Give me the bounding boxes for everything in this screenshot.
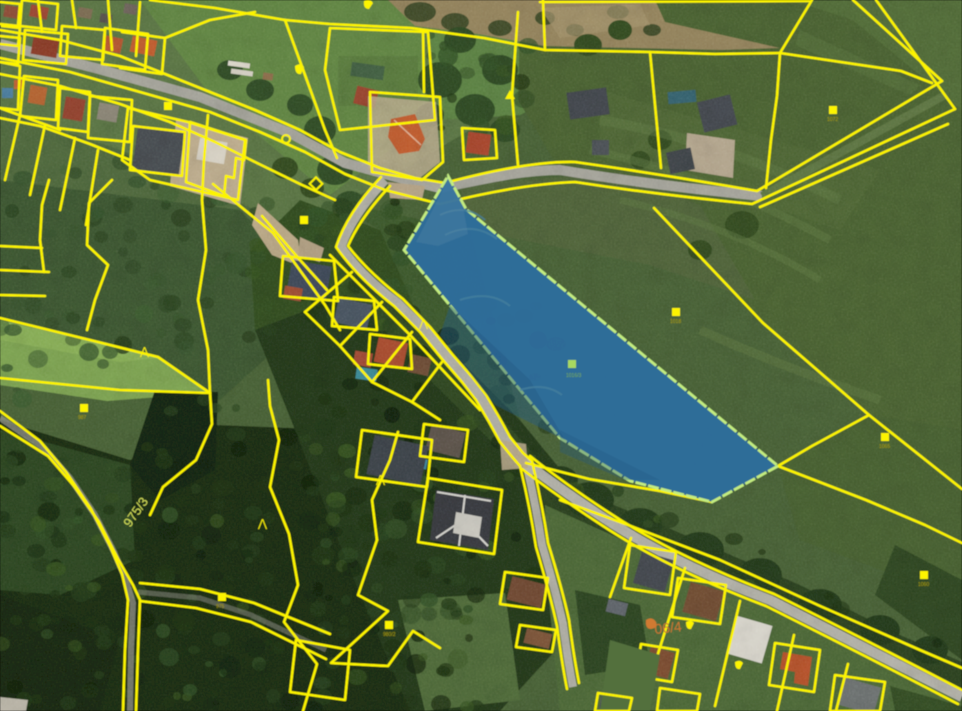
svg-text:⋀: ⋀: [418, 318, 429, 330]
svg-text:1072: 1072: [827, 117, 838, 123]
svg-text:⋀: ⋀: [375, 474, 386, 486]
svg-text:1016/3: 1016/3: [566, 373, 582, 379]
svg-text:⋀: ⋀: [139, 346, 150, 358]
svg-text:987: 987: [78, 415, 87, 421]
svg-text:975: 975: [216, 604, 225, 610]
svg-text:980/2: 980/2: [383, 632, 396, 638]
svg-text:1060: 1060: [918, 582, 929, 588]
svg-text:06/4: 06/4: [654, 618, 683, 637]
svg-text:⋀: ⋀: [257, 518, 268, 530]
svg-text:1018: 1018: [670, 319, 681, 325]
svg-text:1065: 1065: [879, 444, 890, 450]
